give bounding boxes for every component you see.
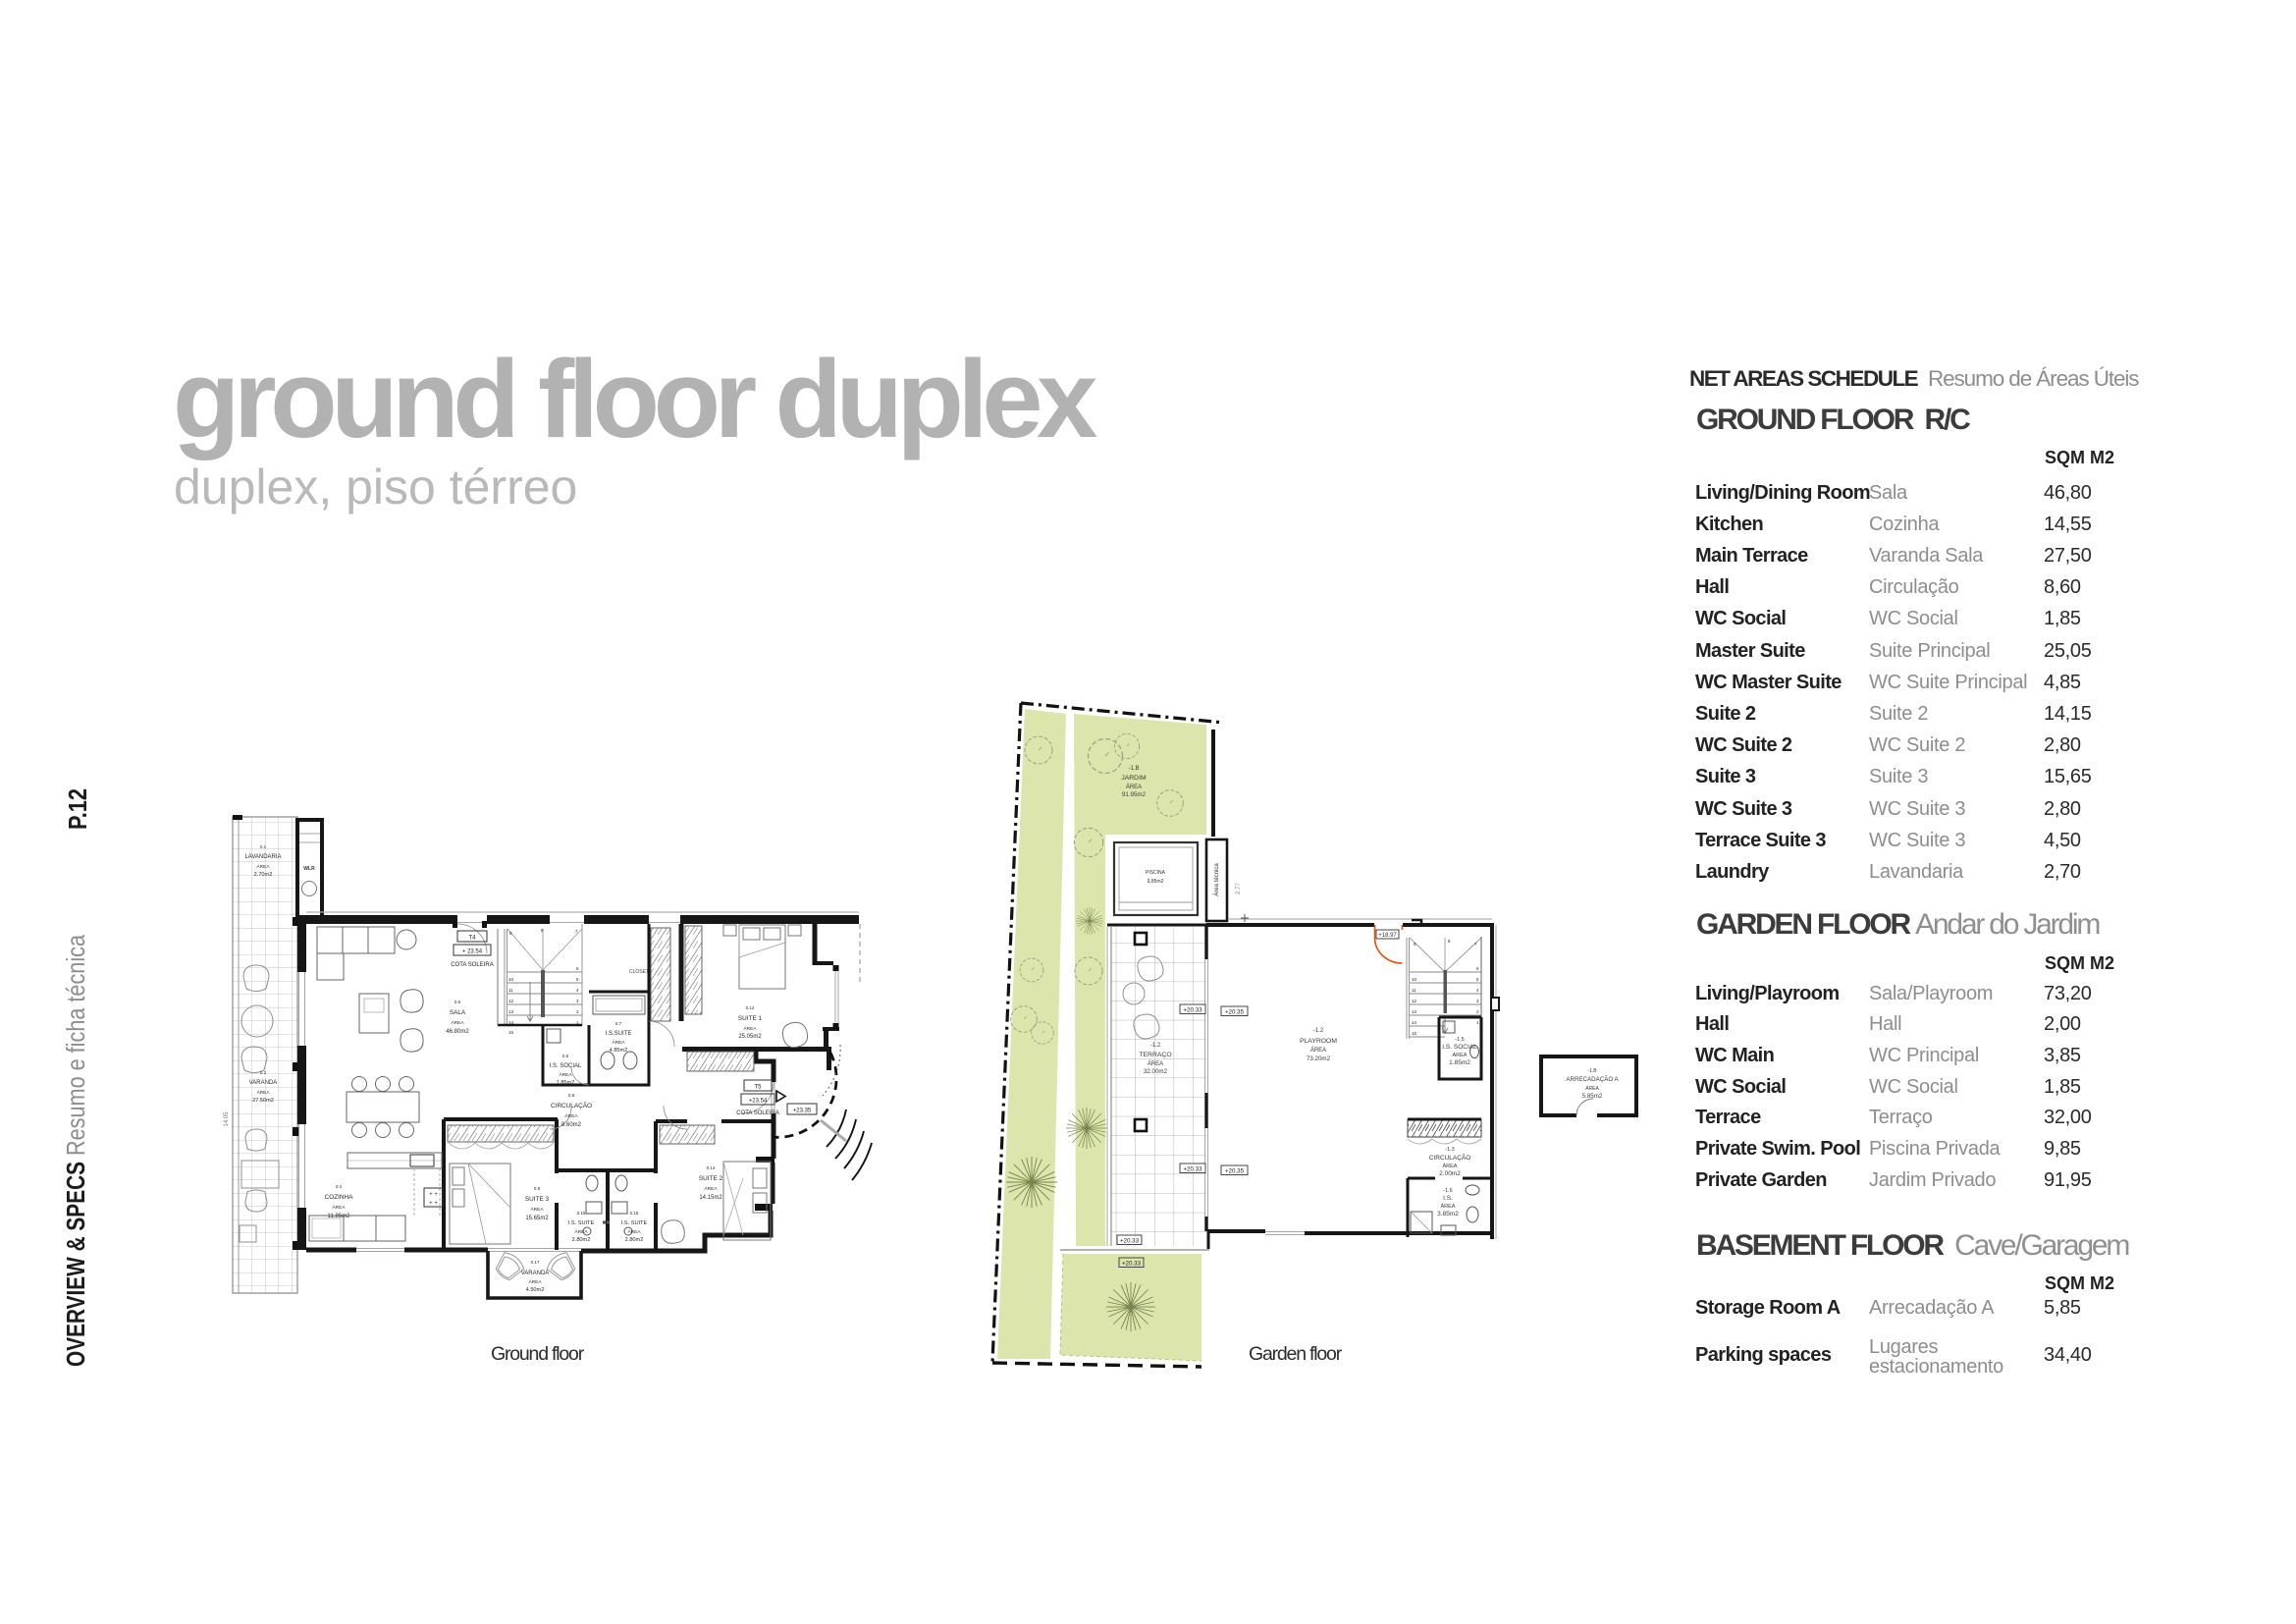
svg-text:0.5: 0.5 — [454, 1000, 461, 1004]
svg-text:CLOSET: CLOSET — [629, 969, 649, 975]
svg-text:T4: T4 — [468, 936, 476, 942]
svg-text:LAVANDARIA: LAVANDARIA — [244, 854, 281, 860]
svg-text:8: 8 — [541, 928, 544, 933]
svg-text:14: 14 — [1412, 1020, 1417, 1025]
svg-text:8: 8 — [1448, 939, 1451, 944]
svg-text:+ 23.54: + 23.54 — [462, 949, 483, 955]
svg-text:+20.33: +20.33 — [1183, 1166, 1202, 1173]
svg-text:ÁREA: ÁREA — [743, 1025, 757, 1032]
svg-text:2.70m2: 2.70m2 — [254, 872, 273, 878]
svg-text:-1.3: -1.3 — [1445, 1147, 1454, 1153]
svg-text:2.00m2: 2.00m2 — [1439, 1170, 1461, 1177]
svg-text:0.1: 0.1 — [260, 844, 267, 849]
svg-text:ÁREA: ÁREA — [1585, 1085, 1599, 1092]
svg-text:Resumo e ficha técnica: Resumo e ficha técnica — [61, 935, 90, 1156]
svg-text:CIRCULAÇÃO: CIRCULAÇÃO — [1429, 1153, 1471, 1162]
svg-text:12: 12 — [1412, 999, 1417, 1003]
svg-text:-1.2: -1.2 — [1313, 1028, 1324, 1034]
svg-text:46.80m2: 46.80m2 — [446, 1029, 469, 1035]
svg-text:PLAYROOM: PLAYROOM — [1300, 1038, 1337, 1045]
svg-text:VARANDA: VARANDA — [521, 1271, 550, 1276]
svg-text:1.85m2: 1.85m2 — [557, 1080, 575, 1086]
svg-text:2: 2 — [1476, 1009, 1479, 1014]
svg-text:ÁREA: ÁREA — [704, 1185, 718, 1192]
svg-text:4.50m2: 4.50m2 — [526, 1287, 545, 1293]
svg-text:P.12: P.12 — [63, 788, 92, 830]
svg-text:+ +: + + — [429, 1201, 438, 1207]
svg-text:ÁREA: ÁREA — [612, 1039, 625, 1046]
svg-text:I.S. SOCIAL: I.S. SOCIAL — [1442, 1044, 1477, 1051]
svg-text:0.14: 0.14 — [707, 1165, 716, 1170]
svg-text:3: 3 — [1476, 999, 1479, 1003]
svg-text:SALA: SALA — [450, 1009, 466, 1016]
svg-text:0.8: 0.8 — [568, 1093, 575, 1098]
svg-text:25.05m2: 25.05m2 — [738, 1034, 762, 1040]
svg-text:2.77: 2.77 — [1236, 883, 1242, 894]
svg-text:ÁREA: ÁREA — [1148, 1060, 1163, 1067]
svg-text:15: 15 — [1412, 1031, 1417, 1036]
svg-text:6: 6 — [1476, 966, 1479, 971]
svg-text:0.4: 0.4 — [336, 1184, 343, 1189]
svg-text:5: 5 — [1476, 977, 1479, 982]
svg-text:4: 4 — [1476, 988, 1479, 993]
svg-text:SUITE 3: SUITE 3 — [525, 1196, 550, 1203]
svg-text:I.S.: I.S. — [1443, 1195, 1453, 1202]
svg-text:12: 12 — [508, 999, 514, 1003]
svg-text:15.65m2: 15.65m2 — [525, 1216, 549, 1221]
svg-text:ÁREA: ÁREA — [256, 1089, 270, 1096]
svg-text:I.S. SUITE: I.S. SUITE — [621, 1220, 648, 1226]
svg-text:ÁREA: ÁREA — [1453, 1052, 1468, 1058]
svg-text:6: 6 — [576, 966, 579, 971]
svg-text:VARANDA: VARANDA — [249, 1080, 278, 1086]
svg-text:27.50m2: 27.50m2 — [252, 1098, 274, 1104]
svg-text:5: 5 — [576, 977, 579, 982]
svg-text:0.17: 0.17 — [531, 1260, 540, 1265]
svg-text:91.95m2: 91.95m2 — [1122, 791, 1147, 798]
svg-text:SUITE 2: SUITE 2 — [699, 1175, 723, 1182]
svg-text:-1.5: -1.5 — [1455, 1037, 1464, 1043]
svg-text:8.60m2: 8.60m2 — [561, 1122, 582, 1128]
svg-text:11.85m2: 11.85m2 — [328, 1214, 351, 1219]
svg-text:-1.B: -1.B — [1587, 1068, 1597, 1074]
svg-text:ÁREA: ÁREA — [256, 863, 270, 870]
svg-text:-1.B: -1.B — [1128, 766, 1139, 772]
svg-text:+23.54: +23.54 — [749, 1099, 768, 1105]
svg-text:13: 13 — [508, 1009, 514, 1014]
svg-text:73.20m2: 73.20m2 — [1307, 1056, 1331, 1062]
svg-text:+20.35: +20.35 — [1225, 1009, 1245, 1016]
svg-text:I.S. SUITE: I.S. SUITE — [568, 1220, 595, 1226]
svg-text:4: 4 — [576, 988, 579, 993]
svg-text:JARDIM: JARDIM — [1121, 775, 1147, 782]
svg-text:11: 11 — [1412, 988, 1416, 993]
svg-text:ARRECADAÇÃO A: ARRECADAÇÃO A — [1566, 1076, 1619, 1083]
svg-text:+20.33: +20.33 — [1183, 1007, 1202, 1014]
svg-text:TERRAÇO: TERRAÇO — [1139, 1052, 1171, 1058]
svg-text:3: 3 — [576, 999, 579, 1003]
svg-text:-1.6: -1.6 — [1443, 1188, 1452, 1194]
svg-text:ÁREA: ÁREA — [1126, 784, 1142, 790]
svg-text:-1.2: -1.2 — [1150, 1043, 1161, 1049]
svg-text:I.S.SUITE: I.S.SUITE — [606, 1031, 632, 1037]
svg-text:+20.33: +20.33 — [1120, 1238, 1140, 1245]
svg-text:2: 2 — [576, 1009, 579, 1014]
svg-text:T5: T5 — [754, 1085, 762, 1091]
svg-text:3.85m2: 3.85m2 — [1437, 1211, 1459, 1218]
svg-text:+18.97: +18.97 — [1378, 933, 1397, 939]
svg-text:ÁREA: ÁREA — [1443, 1163, 1458, 1169]
svg-text:PISCINA: PISCINA — [1146, 870, 1166, 876]
svg-text:COTA SOLEIRA: COTA SOLEIRA — [736, 1110, 779, 1116]
svg-text:14.15m2: 14.15m2 — [699, 1195, 722, 1201]
svg-text:CIRCULAÇÃO: CIRCULAÇÃO — [551, 1101, 592, 1110]
svg-text:I.S. SOCIAL: I.S. SOCIAL — [550, 1063, 582, 1069]
svg-text:0.2: 0.2 — [260, 1070, 267, 1075]
svg-text:ÁREA: ÁREA — [1441, 1203, 1456, 1210]
svg-text:COZINHA: COZINHA — [325, 1194, 353, 1201]
svg-text:0.9: 0.9 — [534, 1186, 541, 1191]
svg-text:32.00m2: 32.00m2 — [1144, 1068, 1168, 1075]
svg-text:ÁREA: ÁREA — [564, 1112, 578, 1119]
svg-text:1: 1 — [1476, 1020, 1479, 1025]
svg-text:1.85m2: 1.85m2 — [1449, 1059, 1470, 1066]
svg-text:ÁREA: ÁREA — [627, 1228, 641, 1235]
svg-text:+20.35: +20.35 — [1225, 1168, 1245, 1175]
svg-text:0.16: 0.16 — [577, 1211, 586, 1216]
svg-text:14.05: 14.05 — [224, 1111, 230, 1127]
svg-text:4.85m2: 4.85m2 — [610, 1048, 628, 1054]
svg-text:+20.33: +20.33 — [1122, 1261, 1142, 1268]
svg-text:ÁREA: ÁREA — [451, 1019, 464, 1026]
svg-text:OVERVIEW & SPECS: OVERVIEW & SPECS — [61, 1162, 90, 1367]
svg-text:9: 9 — [509, 931, 512, 936]
svg-text:13: 13 — [1412, 1009, 1417, 1014]
svg-text:2.80m2: 2.80m2 — [572, 1237, 591, 1243]
svg-text:10: 10 — [1412, 977, 1417, 982]
svg-text:2.80m2: 2.80m2 — [625, 1237, 644, 1243]
svg-text:ÁREA: ÁREA — [574, 1228, 588, 1235]
svg-text:9,85m2: 9,85m2 — [1148, 879, 1164, 885]
svg-text:0.5: 0.5 — [562, 1054, 569, 1058]
svg-text:0.7: 0.7 — [615, 1021, 622, 1026]
svg-text:ÁREA: ÁREA — [559, 1071, 572, 1078]
svg-text:+ +: + + — [429, 1192, 438, 1198]
svg-text:15: 15 — [508, 1030, 514, 1035]
svg-text:0.12: 0.12 — [746, 1005, 755, 1010]
svg-text:SUITE 1: SUITE 1 — [738, 1015, 763, 1022]
svg-text:5.85m2: 5.85m2 — [1582, 1093, 1603, 1100]
svg-text:ÁREA: ÁREA — [530, 1206, 544, 1213]
svg-text:ÁREA: ÁREA — [1310, 1047, 1326, 1054]
svg-text:+23.35: +23.35 — [793, 1109, 812, 1114]
svg-text:COTA SOLEIRA: COTA SOLEIRA — [451, 962, 494, 968]
svg-text:10: 10 — [508, 977, 514, 982]
svg-text:WLR: WLR — [303, 866, 315, 872]
svg-text:11: 11 — [508, 988, 513, 993]
svg-text:Área técnica: Área técnica — [1213, 863, 1220, 896]
svg-text:ÁREA: ÁREA — [528, 1278, 542, 1285]
svg-text:ÁREA: ÁREA — [332, 1204, 346, 1211]
svg-text:0.15: 0.15 — [630, 1211, 639, 1216]
